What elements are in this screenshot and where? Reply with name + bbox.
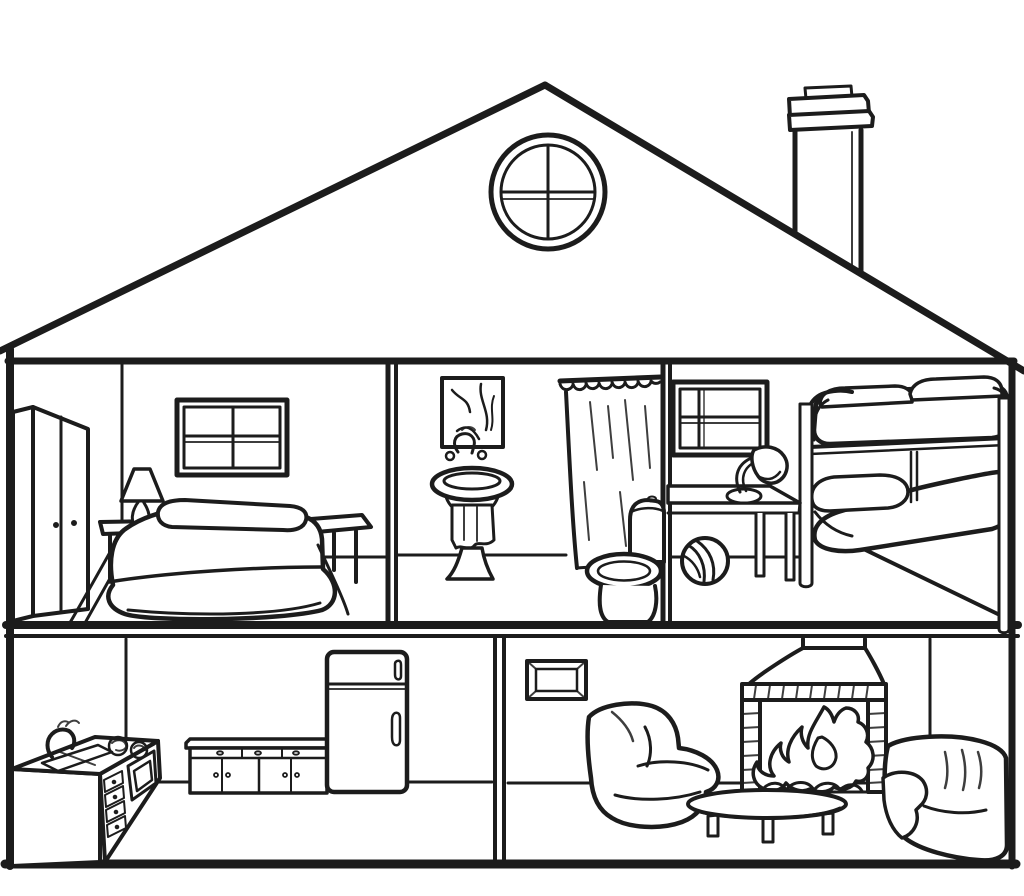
toilet-base	[600, 585, 657, 622]
wardrobe	[13, 407, 88, 621]
desk-lamp-shade	[752, 447, 787, 483]
desk-leg-front	[756, 513, 764, 576]
ball	[682, 538, 728, 584]
curtain-fold-1	[590, 402, 597, 470]
fire-flame	[753, 707, 873, 792]
bed-pillow	[158, 500, 307, 530]
table-leg-1	[708, 815, 718, 836]
curtain-fold-3	[625, 400, 633, 480]
drawer-knob-3	[114, 810, 118, 814]
room-bathroom	[398, 377, 664, 622]
sink-handle-right	[478, 451, 486, 459]
drawer-knob-2	[113, 795, 117, 799]
kitchen-cabinet	[186, 739, 329, 793]
table-leg-2	[763, 818, 773, 842]
curtain-left-edge	[566, 392, 577, 568]
wardrobe-knob-right	[72, 521, 77, 526]
curtain-fold-2	[608, 406, 613, 458]
upper-divider-bedroom-bathroom	[388, 363, 396, 623]
roof-left-edge	[0, 85, 545, 351]
curtain-fold-4	[645, 406, 650, 468]
fireplace	[742, 639, 886, 792]
room-kids-bedroom	[668, 377, 1009, 633]
curtain-fold-6	[620, 492, 626, 546]
drawer-knob-4	[115, 825, 119, 829]
coffee-table	[688, 790, 846, 842]
chimney-cap-lip	[789, 111, 873, 130]
kids-window	[673, 382, 767, 455]
lower-divider-kitchen-livingroom	[495, 638, 504, 862]
sink-pedestal	[447, 548, 493, 579]
table-leg-3	[823, 813, 833, 834]
mantel-band	[742, 684, 886, 700]
sofa-chair-right	[883, 736, 1007, 860]
drawer-knob-1	[112, 780, 116, 784]
room-kitchen	[12, 639, 492, 866]
sink-handle-left	[446, 452, 454, 460]
kitchen-faucet-spray	[58, 721, 79, 727]
curtain-rod	[560, 377, 661, 381]
toilet	[587, 497, 664, 623]
bunk-lower-pillow	[812, 475, 908, 511]
bunk-right-post	[999, 398, 1009, 633]
bunk-side-rail-diagonal	[845, 540, 1006, 618]
double-bed	[68, 500, 348, 626]
sink-towel	[452, 505, 494, 548]
curtain-fold-5	[584, 482, 589, 540]
livingroom-picture	[527, 661, 586, 699]
wardrobe-knob-left	[54, 523, 59, 528]
bunk-bed	[800, 377, 1009, 633]
house-cross-section-drawing	[0, 0, 1024, 896]
room-bedroom	[13, 364, 386, 626]
bedroom-window	[177, 400, 287, 475]
desk-edge	[799, 503, 800, 513]
chimney	[789, 86, 873, 273]
counter-front-face	[12, 769, 100, 866]
bunk-left-post	[800, 404, 812, 587]
kitchen-counter	[12, 721, 160, 866]
room-living-room	[508, 639, 1008, 860]
bunk-upper-pillow-right	[910, 377, 1002, 400]
coloring-page	[0, 0, 1024, 896]
roof-right-edge	[545, 85, 1024, 371]
fireplace-hood	[749, 648, 884, 684]
desk-lamp-base	[727, 489, 761, 503]
gable-round-window	[491, 135, 605, 249]
wardrobe-side-panel	[13, 407, 33, 621]
lamp-shade	[121, 469, 163, 501]
refrigerator	[327, 652, 407, 792]
desk-leg-back	[786, 513, 794, 580]
